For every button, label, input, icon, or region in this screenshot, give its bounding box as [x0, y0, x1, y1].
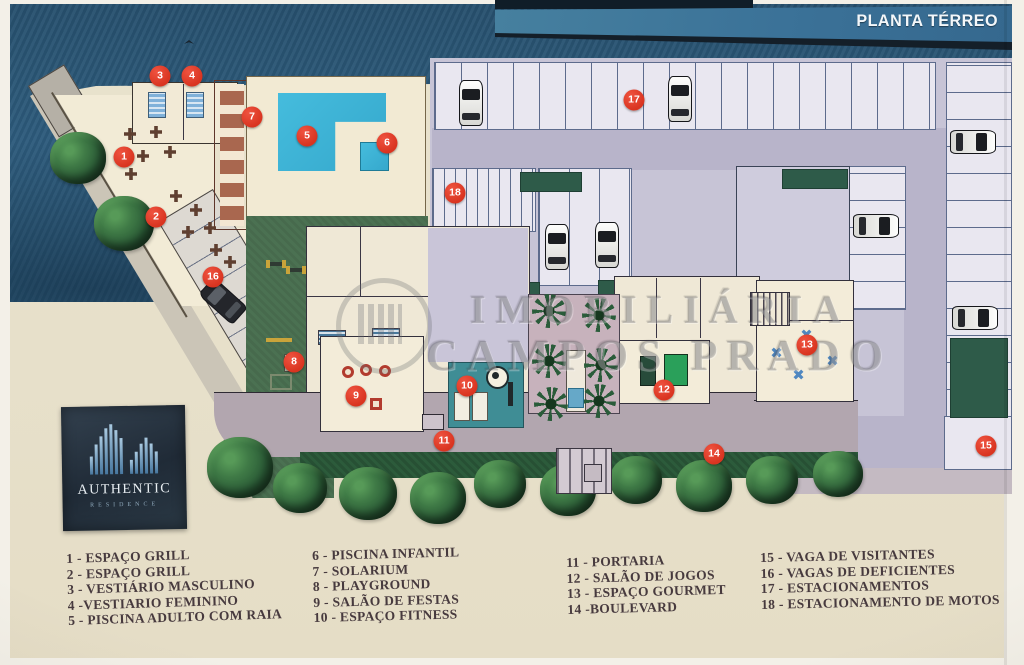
palm-tree-icon — [534, 387, 568, 421]
map-marker: 11 — [434, 431, 455, 452]
car-icon — [595, 222, 619, 268]
stairs — [750, 292, 790, 326]
photo-edge — [1004, 0, 1007, 665]
gym-equipment-icon — [268, 262, 284, 266]
party-hall — [320, 336, 424, 432]
left-block-roof — [428, 228, 528, 362]
car-icon — [668, 76, 692, 122]
legend-column-2: 6 - PISCINA INFANTIL7 - SOLARIUM8 - PLAY… — [312, 544, 461, 626]
map-marker: 1 — [114, 147, 135, 168]
map-marker: 17 — [624, 90, 645, 111]
playground-swing-icon — [266, 338, 292, 342]
tree — [273, 463, 327, 513]
map-marker: 12 — [654, 380, 675, 401]
garden-square — [950, 338, 1008, 418]
wall-line — [700, 278, 701, 338]
cabinet-icon — [640, 356, 656, 386]
map-marker: 18 — [445, 183, 466, 204]
palm-tree-icon — [582, 384, 616, 418]
gatehouse-booth — [422, 414, 444, 430]
dumbbell-rack-icon — [508, 382, 513, 406]
tree — [410, 472, 466, 524]
tree — [610, 456, 662, 504]
map-marker: 8 — [284, 352, 305, 373]
playground-sandbox-icon — [270, 374, 292, 390]
palm-tree-icon — [532, 344, 566, 378]
tree — [94, 196, 154, 251]
legend-column-1: 1 - ESPAÇO GRILL2 - ESPAÇO GRILL3 - VEST… — [66, 544, 282, 629]
tree — [50, 132, 106, 184]
exercise-mat-icon — [472, 392, 488, 421]
wall-line — [306, 296, 428, 297]
tree — [339, 467, 397, 520]
shower-stall — [148, 92, 166, 118]
map-marker: 6 — [377, 133, 398, 154]
palm-tree-icon — [584, 348, 618, 382]
gym-equipment-icon — [288, 268, 304, 272]
solarium-deck — [214, 80, 250, 230]
logo-name: AUTHENTIC — [62, 481, 186, 499]
parking-mid-column — [846, 166, 906, 310]
tree — [813, 451, 863, 497]
map-marker: 3 — [150, 66, 171, 87]
shower-stall — [186, 92, 204, 118]
car-icon — [952, 306, 998, 330]
wall-line — [183, 84, 184, 140]
wall-line — [360, 226, 361, 296]
tree — [207, 437, 273, 498]
palm-tree-icon — [532, 294, 566, 328]
legend-column-4: 15 - VAGA DE VISITANTES16 - VAGAS DE DEF… — [760, 545, 1000, 612]
map-marker: 10 — [457, 376, 478, 397]
page-title: PLANTA TÉRREO — [781, 12, 998, 30]
car-icon — [545, 224, 569, 270]
logo-towers-icon — [61, 419, 186, 475]
map-marker: 9 — [346, 386, 367, 407]
car-icon — [459, 80, 483, 126]
car-icon — [853, 214, 899, 238]
map-marker: 2 — [146, 207, 167, 228]
tree — [474, 460, 526, 508]
wall-line — [656, 278, 657, 338]
round-table-icon — [360, 364, 372, 376]
tree — [746, 456, 798, 504]
map-marker: 14 — [704, 444, 725, 465]
map-marker: 5 — [297, 126, 318, 147]
spa-tub-icon — [486, 366, 509, 389]
logo-subtitle: RESIDENCE — [63, 501, 187, 509]
legend-column-3: 11 - PORTARIA12 - SALÃO DE JOGOS13 - ESP… — [566, 551, 726, 618]
table-icon — [370, 398, 382, 410]
site-plan-photo: PLANTA TÉRREO — [0, 0, 1024, 665]
authentic-logo: AUTHENTIC RESIDENCE — [61, 405, 187, 531]
map-marker: 4 — [182, 66, 203, 87]
map-marker: 15 — [976, 436, 997, 457]
map-marker: 16 — [203, 267, 224, 288]
map-marker: 7 — [242, 107, 263, 128]
round-table-icon — [379, 365, 391, 377]
hedge-strip — [520, 172, 582, 192]
water-feature — [568, 388, 584, 408]
map-marker: 13 — [797, 335, 818, 356]
round-table-icon — [342, 366, 354, 378]
car-icon — [950, 130, 996, 154]
hedge-strip — [782, 169, 848, 189]
banner-top-strip — [495, 0, 753, 9]
tree — [676, 460, 732, 512]
palm-tree-icon — [582, 298, 616, 332]
entrance-kiosk — [584, 464, 602, 482]
